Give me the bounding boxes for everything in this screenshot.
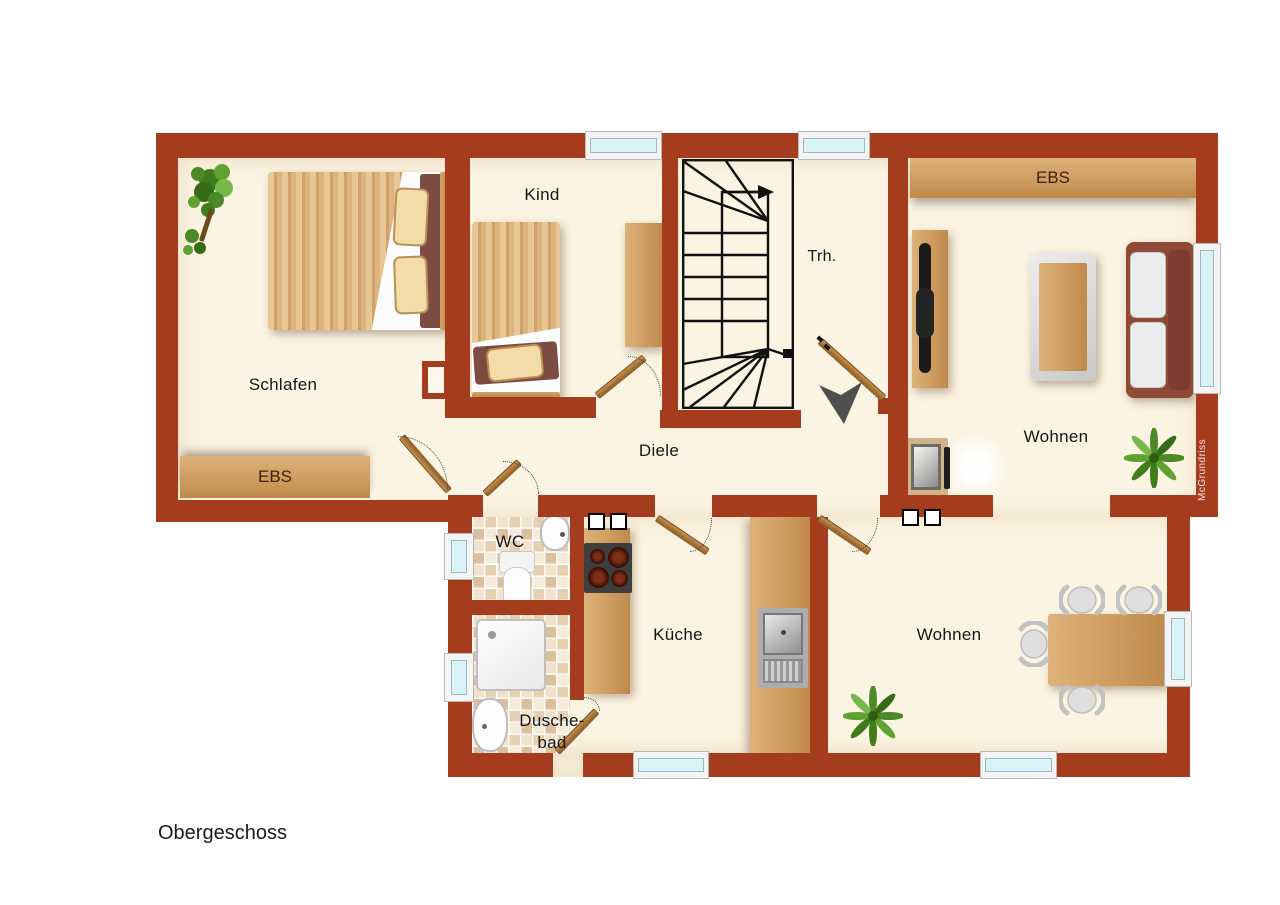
- burner: [588, 567, 609, 588]
- wall: [448, 495, 483, 517]
- window-glass: [451, 660, 467, 695]
- staircase: [682, 159, 794, 409]
- plant-icon: [1124, 428, 1184, 488]
- wall: [712, 495, 817, 517]
- shower-tray: [476, 619, 546, 691]
- wall: [1196, 133, 1218, 245]
- window-glass: [1171, 618, 1185, 680]
- wall: [156, 133, 178, 522]
- dining-chair: [1017, 621, 1051, 667]
- window-glass: [1200, 250, 1214, 387]
- schlafen-ebs-closet: EBS: [180, 456, 370, 498]
- room-label-wohnen-top: Wohnen: [1024, 427, 1089, 447]
- wall: [445, 397, 596, 418]
- sofa-cushion: [1130, 252, 1166, 318]
- bed-duvet: [472, 222, 560, 348]
- dining-chair: [1059, 583, 1105, 617]
- wall: [662, 133, 798, 158]
- wall: [156, 500, 472, 522]
- floorplan-obergeschoss: EBS: [0, 0, 1280, 905]
- wall-niche: [422, 361, 450, 399]
- room-label-trh: Trh.: [807, 248, 836, 266]
- stove: [584, 543, 632, 593]
- burner: [590, 549, 605, 564]
- shower-drain: [488, 631, 496, 639]
- dining-chair: [1116, 583, 1162, 617]
- duschebad-label-line2: bad: [537, 733, 566, 752]
- fireplace-door: [944, 447, 950, 489]
- plant-icon: [180, 158, 242, 268]
- duschebad-label-line1: Dusche-: [519, 711, 584, 730]
- floor-title: Obergeschoss: [158, 822, 287, 845]
- room-label-kind: Kind: [524, 185, 559, 205]
- room-label-schlafen: Schlafen: [249, 375, 318, 395]
- plant-icon: [843, 686, 903, 746]
- wall: [662, 158, 678, 410]
- sofa: [1126, 242, 1194, 398]
- faucet-dot: [482, 724, 487, 729]
- wohnen-ebs-closet: EBS: [910, 158, 1196, 198]
- wall: [870, 133, 1218, 158]
- room-label-wc: WC: [496, 532, 525, 552]
- chimney-mark: [924, 509, 941, 526]
- wall: [1167, 685, 1190, 777]
- room-label-wohnen-bottom: Wohnen: [917, 625, 982, 645]
- fireplace-glow: [944, 432, 1008, 502]
- kitchen-sink-unit: [758, 608, 808, 688]
- tv-icon: [916, 288, 934, 338]
- wall: [538, 495, 570, 517]
- direction-arrow-icon: [815, 378, 865, 428]
- sofa-backrest: [1168, 250, 1190, 390]
- wall: [888, 158, 908, 497]
- fireplace-firebox: [911, 444, 941, 490]
- faucet-dot: [560, 532, 565, 537]
- wohnen-ebs-label: EBS: [1036, 168, 1070, 188]
- stairs-up-arrow: [758, 185, 774, 199]
- wall: [448, 578, 472, 655]
- wall: [583, 753, 635, 777]
- single-bed: [472, 222, 560, 402]
- kind-desk: [625, 223, 662, 347]
- sink-drainer: [763, 659, 803, 683]
- chimney-mark: [610, 513, 627, 530]
- dining-table: [1048, 614, 1166, 686]
- wall: [660, 410, 801, 428]
- wall: [810, 517, 828, 753]
- dining-chair: [1059, 683, 1105, 717]
- room-label-duschebad: Dusche- bad: [519, 710, 584, 754]
- wc-sink: [540, 515, 570, 551]
- schlafen-ebs-label: EBS: [258, 467, 292, 487]
- chimney-mark: [588, 513, 605, 530]
- watermark-mcgrundriss: McGrundriss: [1197, 412, 1217, 527]
- room-label-kueche: Küche: [653, 625, 703, 645]
- faucet-dot: [781, 630, 786, 635]
- bath-sink: [472, 698, 508, 752]
- bed-pillow: [485, 343, 544, 383]
- wall: [707, 753, 982, 777]
- window-glass: [451, 540, 467, 573]
- bed-pillow: [393, 255, 429, 314]
- sofa-cushion: [1130, 322, 1166, 388]
- coffee-table: [1030, 253, 1096, 381]
- chimney-mark: [902, 509, 919, 526]
- wall: [1167, 517, 1190, 613]
- burner: [611, 570, 628, 587]
- coffee-table-top: [1039, 263, 1087, 371]
- wall: [570, 495, 584, 700]
- bed-pillow: [393, 187, 430, 247]
- fireplace: [906, 438, 948, 496]
- wall: [156, 133, 585, 158]
- window-glass: [985, 758, 1052, 772]
- double-bed: [268, 172, 452, 330]
- window-glass: [803, 138, 865, 153]
- window-glass: [638, 758, 704, 772]
- burner: [608, 547, 629, 568]
- wall: [448, 753, 553, 777]
- floor-door-patch: [553, 753, 583, 777]
- wall: [448, 600, 570, 615]
- window-glass: [590, 138, 657, 153]
- room-label-diele: Diele: [639, 441, 679, 461]
